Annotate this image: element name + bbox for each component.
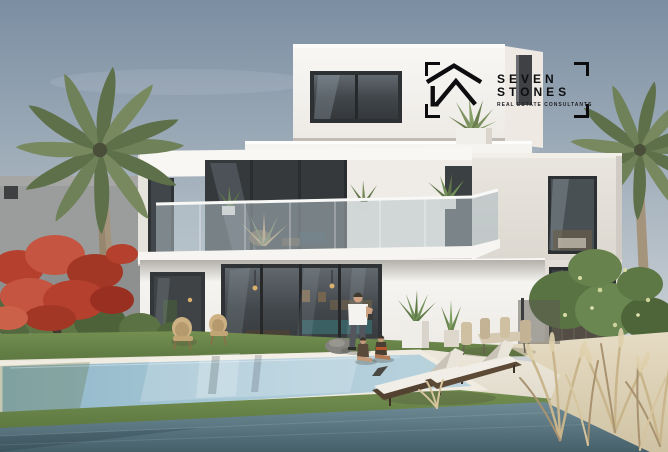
second-floor-front — [138, 147, 500, 268]
brand-name-line2: STONES — [497, 86, 592, 99]
brand-tagline: REAL ESTATE CONSULTANTS — [497, 102, 592, 108]
house-outline-logo-icon — [425, 62, 483, 108]
brand-watermark: SEVEN STONES REAL ESTATE CONSULTANTS — [425, 62, 589, 118]
villa-listing-rendering: SEVEN STONES REAL ESTATE CONSULTANTS — [0, 0, 668, 452]
brand-text: SEVEN STONES REAL ESTATE CONSULTANTS — [497, 73, 592, 108]
